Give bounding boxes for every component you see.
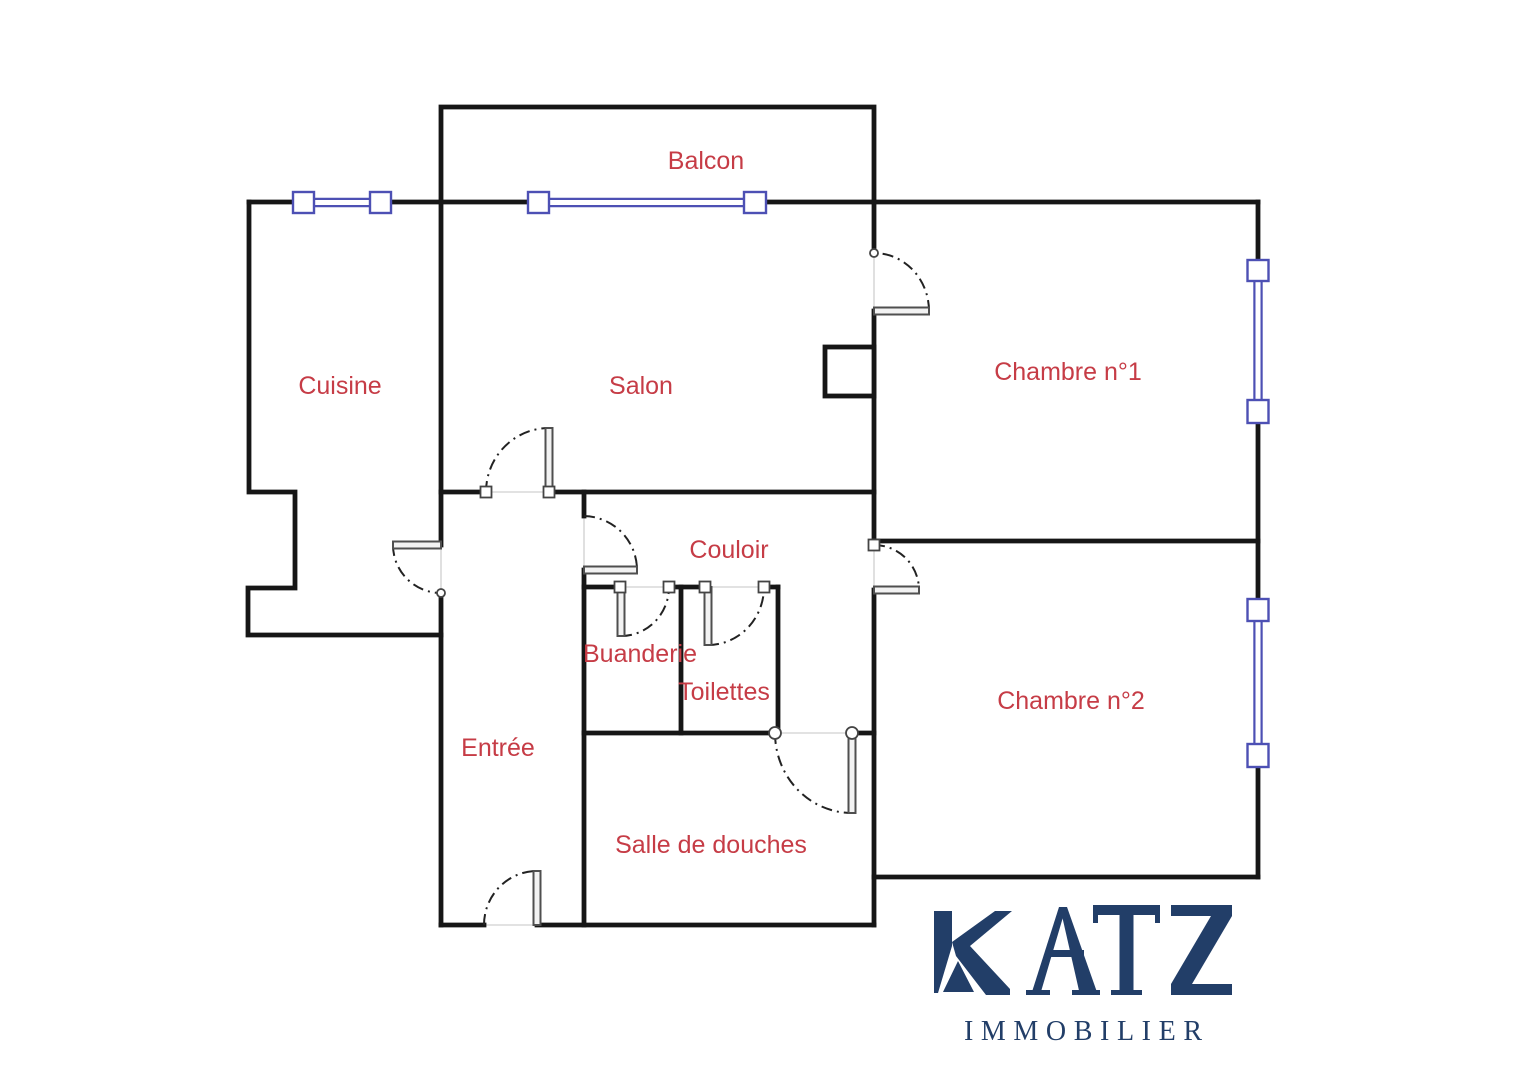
svg-text:Salon: Salon (609, 372, 673, 400)
svg-text:Cuisine: Cuisine (298, 372, 381, 400)
svg-text:Balcon: Balcon (668, 147, 744, 175)
svg-text:Chambre n°1: Chambre n°1 (994, 358, 1142, 386)
svg-text:Toilettes: Toilettes (678, 678, 770, 706)
svg-text:Buanderie: Buanderie (583, 640, 697, 668)
svg-text:IMMOBILIER: IMMOBILIER (964, 1016, 1202, 1047)
svg-text:Entrée: Entrée (461, 734, 535, 762)
svg-text:Salle de douches: Salle de douches (615, 831, 807, 859)
svg-text:Chambre n°2: Chambre n°2 (997, 687, 1145, 715)
svg-text:Couloir: Couloir (689, 536, 768, 564)
